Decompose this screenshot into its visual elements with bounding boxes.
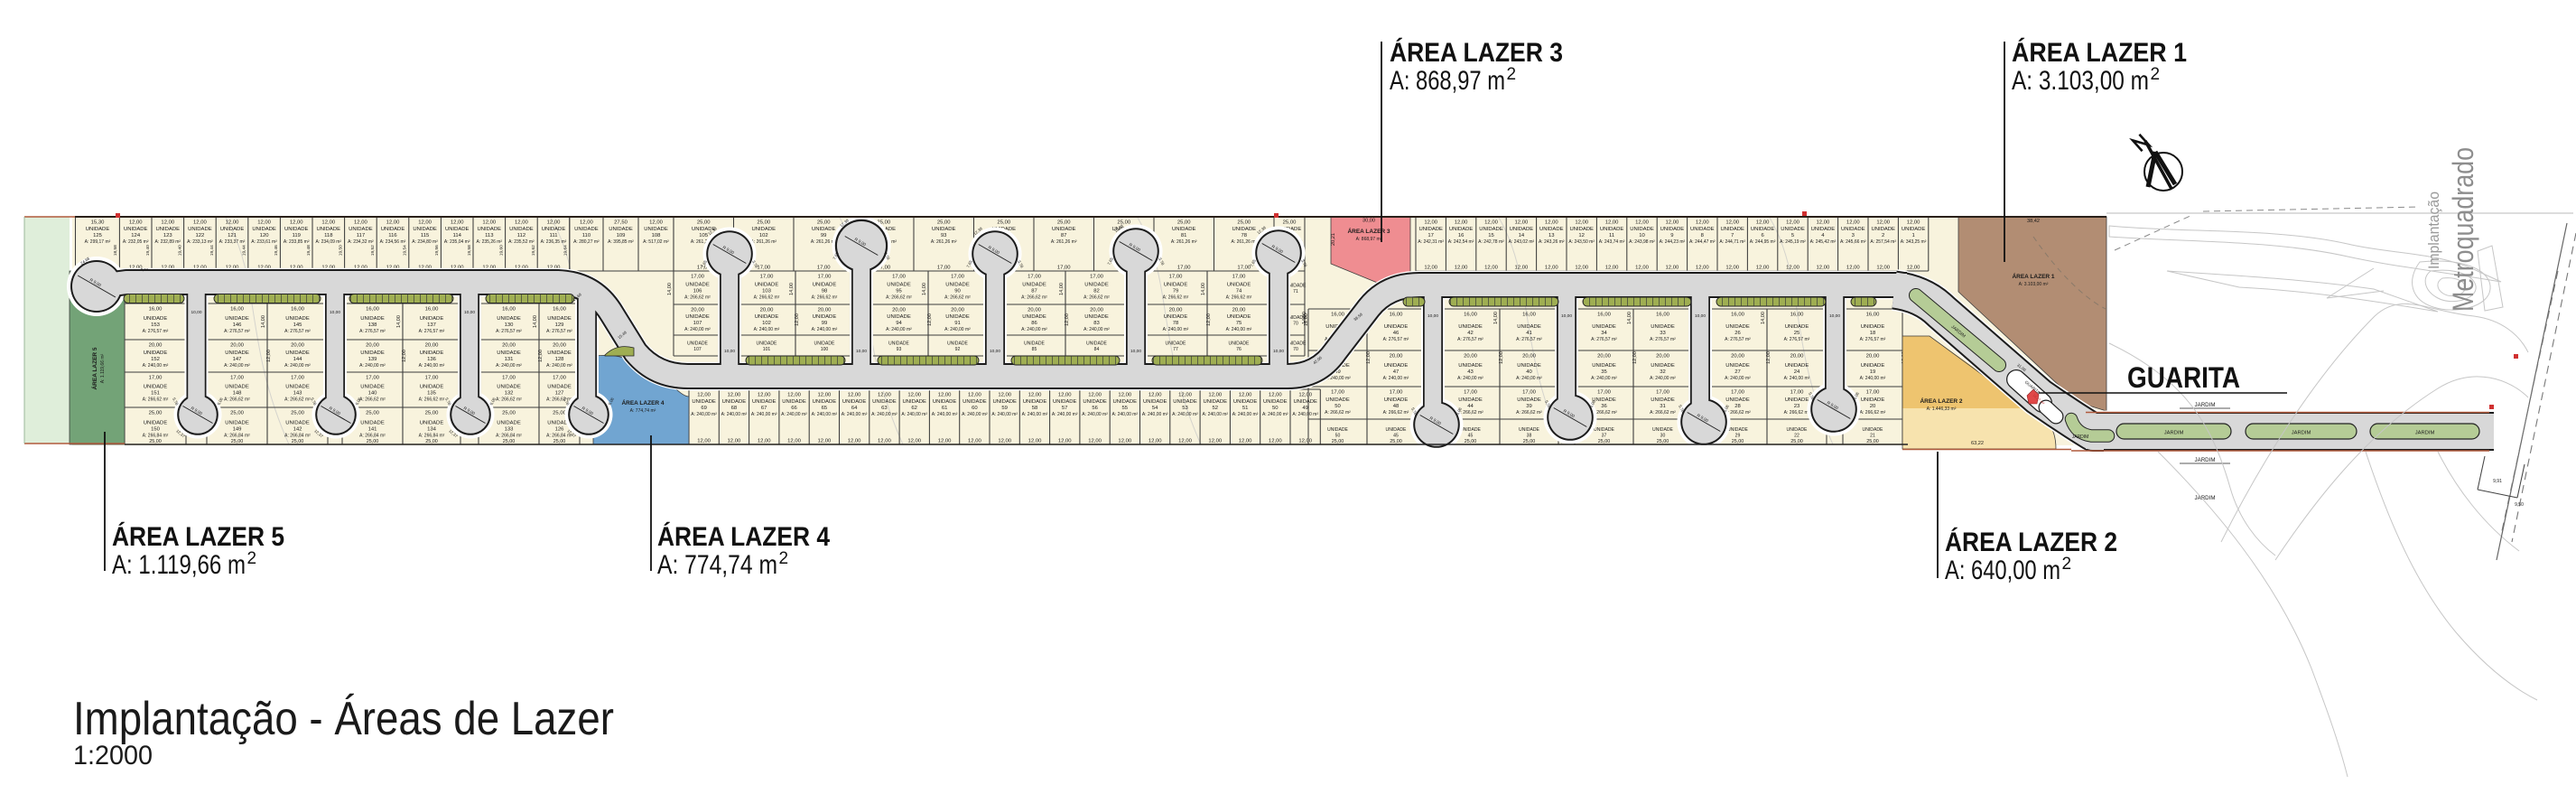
svg-text:UNIDADE: UNIDADE (1592, 324, 1616, 330)
svg-text:90: 90 (954, 289, 961, 294)
svg-text:A: 243,26 m²: A: 243,26 m² (1539, 239, 1565, 245)
svg-text:20,00: 20,00 (691, 308, 704, 313)
svg-text:UNIDADE: UNIDADE (542, 227, 566, 232)
svg-text:27,50: 27,50 (614, 220, 628, 226)
svg-text:12,00: 12,00 (1298, 439, 1312, 444)
svg-text:17,00: 17,00 (1028, 275, 1041, 280)
svg-text:37: 37 (1602, 434, 1607, 439)
svg-text:A: 240,00 m²: A: 240,00 m² (1232, 412, 1259, 417)
svg-text:20,00: 20,00 (818, 308, 832, 313)
svg-text:ÁREA LAZER 4: ÁREA LAZER 4 (621, 398, 664, 406)
svg-text:UNIDADE: UNIDADE (685, 283, 710, 288)
svg-text:16,00: 16,00 (553, 307, 566, 313)
svg-text:UNIDADE: UNIDADE (1084, 283, 1109, 288)
svg-text:A: 266,84 m²: A: 266,84 m² (359, 434, 386, 439)
svg-text:UNIDADE: UNIDADE (509, 227, 534, 232)
svg-text:12,00: 12,00 (1088, 393, 1102, 398)
svg-text:19,40: 19,40 (145, 245, 151, 256)
svg-text:17,00: 17,00 (1790, 390, 1804, 396)
svg-text:UNIDADE: UNIDADE (1630, 227, 1654, 232)
svg-text:111: 111 (550, 233, 558, 238)
svg-text:12,00: 12,00 (848, 393, 861, 398)
svg-text:UNIDADE: UNIDADE (360, 385, 385, 390)
svg-text:25,00: 25,00 (997, 220, 1010, 226)
svg-text:UNIDADE: UNIDADE (1083, 399, 1107, 405)
svg-text:UNIDADE: UNIDADE (1143, 399, 1167, 405)
svg-text:12,00: 12,00 (226, 220, 239, 226)
svg-text:19,52: 19,52 (370, 245, 376, 256)
svg-text:25,00: 25,00 (149, 411, 163, 416)
svg-text:10,00: 10,00 (1130, 349, 1141, 354)
svg-text:66: 66 (791, 406, 797, 411)
svg-text:UNIDADE: UNIDADE (609, 227, 633, 232)
svg-text:16,00: 16,00 (149, 307, 163, 313)
svg-text:16,00: 16,00 (1656, 313, 1669, 318)
svg-text:12,00: 12,00 (1088, 439, 1102, 444)
svg-text:A: 240,00 m²: A: 240,00 m² (1172, 412, 1198, 417)
svg-text:12,00: 12,00 (321, 220, 335, 226)
svg-text:25,00: 25,00 (757, 220, 770, 226)
svg-text:19,46: 19,46 (274, 245, 279, 256)
svg-text:62: 62 (911, 406, 917, 411)
svg-text:12,00: 12,00 (1786, 220, 1799, 226)
svg-text:2: 2 (2151, 65, 2161, 84)
svg-text:A: 240,00 m²: A: 240,00 m² (1457, 376, 1483, 381)
svg-text:34: 34 (1601, 331, 1607, 336)
svg-text:20,21: 20,21 (1331, 233, 1336, 246)
svg-text:20,00: 20,00 (149, 343, 163, 349)
svg-text:12,00: 12,00 (787, 439, 801, 444)
svg-text:A: 1.119,66 m: A: 1.119,66 m (112, 550, 246, 580)
svg-text:A: 240,00 m²: A: 240,00 m² (1292, 412, 1318, 417)
svg-text:UNIDADE: UNIDADE (1871, 227, 1895, 232)
svg-text:17,00: 17,00 (1731, 390, 1744, 396)
svg-text:A: 240,00 m²: A: 240,00 m² (1262, 412, 1288, 417)
svg-text:99: 99 (822, 321, 828, 326)
svg-text:7: 7 (1731, 233, 1734, 238)
svg-text:A: 276,57 m²: A: 276,57 m² (224, 329, 250, 334)
svg-text:12,00: 12,00 (1058, 393, 1072, 398)
svg-text:130: 130 (505, 322, 515, 328)
svg-text:120: 120 (260, 233, 270, 238)
svg-text:12,00: 12,00 (1118, 439, 1131, 444)
svg-text:A: 240,00 m²: A: 240,00 m² (962, 412, 988, 417)
svg-text:108: 108 (652, 233, 662, 238)
svg-text:103: 103 (762, 289, 772, 294)
svg-text:A: 266,84 m²: A: 266,84 m² (284, 434, 311, 439)
svg-text:UNIDADE: UNIDADE (755, 314, 779, 320)
svg-text:A: 266,62 m²: A: 266,62 m² (1325, 410, 1351, 416)
svg-text:A: 234,09 m²: A: 234,09 m² (315, 239, 341, 245)
svg-text:A: 240,00 m²: A: 240,00 m² (1163, 327, 1189, 332)
svg-text:25,00: 25,00 (231, 439, 244, 444)
svg-text:14,00: 14,00 (396, 315, 402, 328)
svg-text:UNIDADE: UNIDADE (420, 350, 444, 356)
svg-text:12,00: 12,00 (907, 439, 921, 444)
svg-text:28: 28 (1734, 404, 1741, 409)
svg-text:A: 266,62 m²: A: 266,62 m² (496, 397, 522, 403)
svg-text:16,00: 16,00 (366, 307, 379, 313)
svg-text:25,00: 25,00 (291, 411, 304, 416)
svg-text:14,00: 14,00 (922, 283, 927, 295)
svg-text:A: 240,00 m²: A: 240,00 m² (812, 327, 838, 332)
svg-text:142: 142 (293, 427, 302, 433)
svg-text:13: 13 (1548, 233, 1555, 238)
svg-text:A: 266,62 m²: A: 266,62 m² (1083, 295, 1110, 301)
svg-text:A: 245,19 m²: A: 245,19 m² (1780, 239, 1806, 245)
svg-text:24: 24 (1794, 369, 1800, 375)
svg-text:10,00: 10,00 (1561, 313, 1572, 319)
svg-text:12,00: 12,00 (1208, 439, 1222, 444)
svg-text:A: 1.119,66 m²: A: 1.119,66 m² (100, 353, 106, 383)
svg-text:12,00: 12,00 (482, 220, 496, 226)
svg-text:151: 151 (151, 391, 160, 397)
svg-text:93: 93 (941, 233, 947, 238)
svg-text:59: 59 (1001, 406, 1008, 411)
svg-text:25,00: 25,00 (366, 411, 379, 416)
svg-text:A: 240,00 m²: A: 240,00 m² (1725, 376, 1751, 381)
svg-text:A: 240,00 m²: A: 240,00 m² (1202, 412, 1228, 417)
svg-text:UNIDADE: UNIDADE (188, 227, 212, 232)
svg-text:12,00: 12,00 (1484, 266, 1498, 271)
svg-text:A: 245,42 m²: A: 245,42 m² (1810, 239, 1837, 245)
svg-text:78: 78 (1173, 321, 1179, 326)
svg-text:94: 94 (896, 321, 902, 326)
svg-text:A: 266,84 m²: A: 266,84 m² (143, 434, 169, 439)
svg-text:15: 15 (1488, 233, 1494, 238)
svg-text:17,00: 17,00 (425, 376, 439, 381)
svg-text:UNIDADE: UNIDADE (360, 421, 385, 426)
svg-text:2: 2 (247, 549, 257, 568)
svg-text:A: 517,02 m²: A: 517,02 m² (643, 239, 669, 245)
svg-text:UNIDADE: UNIDADE (1517, 397, 1541, 403)
svg-text:A: 234,56 m²: A: 234,56 m² (380, 239, 406, 245)
svg-text:ÁREA LAZER 1: ÁREA LAZER 1 (2012, 37, 2187, 68)
svg-text:UNIDADE: UNIDADE (381, 227, 405, 232)
svg-text:12,00: 12,00 (907, 393, 921, 398)
svg-text:JARDIM: JARDIM (2194, 495, 2215, 501)
svg-text:25,00: 25,00 (1866, 439, 1879, 444)
svg-text:UNIDADE: UNIDADE (887, 283, 911, 288)
svg-text:10,00: 10,00 (724, 349, 735, 354)
svg-text:UNIDADE: UNIDADE (1022, 283, 1046, 288)
svg-text:16,00: 16,00 (1866, 313, 1880, 318)
svg-text:45: 45 (1393, 434, 1399, 439)
svg-text:A: 266,84 m²: A: 266,84 m² (224, 434, 250, 439)
svg-text:UNIDADE: UNIDADE (420, 385, 444, 390)
svg-text:12,00: 12,00 (649, 220, 663, 226)
svg-text:20,00: 20,00 (1232, 308, 1246, 313)
svg-text:A: 232,89 m²: A: 232,89 m² (154, 239, 181, 245)
svg-text:UNIDADE: UNIDADE (1458, 324, 1483, 330)
svg-text:A: 240,00 m²: A: 240,00 m² (1083, 327, 1110, 332)
svg-text:17,00: 17,00 (1390, 390, 1403, 396)
svg-text:A: 235,26 m²: A: 235,26 m² (476, 239, 502, 245)
svg-text:A: 395,85 m²: A: 395,85 m² (608, 239, 634, 245)
svg-text:UNIDADE: UNIDADE (814, 341, 836, 347)
svg-text:82: 82 (1093, 289, 1100, 294)
svg-text:17,00: 17,00 (1464, 390, 1477, 396)
svg-text:A: 266,62 m²: A: 266,62 m² (1226, 295, 1252, 301)
svg-text:UNIDADE: UNIDADE (1052, 227, 1076, 232)
svg-text:25,00: 25,00 (1390, 439, 1402, 444)
svg-text:UNIDADE: UNIDADE (225, 385, 249, 390)
svg-text:A: 240,00 m²: A: 240,00 m² (871, 412, 897, 417)
svg-text:25,00: 25,00 (553, 411, 566, 416)
svg-text:54: 54 (1152, 406, 1158, 411)
svg-text:10,00: 10,00 (990, 349, 1000, 354)
svg-text:40: 40 (1526, 369, 1532, 375)
svg-text:25: 25 (1794, 331, 1800, 336)
svg-text:19,44: 19,44 (209, 245, 215, 256)
svg-text:12,00: 12,00 (1545, 220, 1558, 226)
svg-text:UNIDADE: UNIDADE (1727, 427, 1749, 433)
svg-text:20,00: 20,00 (1522, 354, 1536, 360)
svg-text:14,00: 14,00 (261, 315, 266, 328)
svg-text:A: 240,00 m²: A: 240,00 m² (284, 363, 311, 369)
svg-text:21: 21 (1870, 434, 1875, 439)
svg-text:20,00: 20,00 (1790, 354, 1804, 360)
svg-text:UNIDADE: UNIDADE (945, 283, 970, 288)
svg-text:JARDIM: JARDIM (2164, 431, 2184, 436)
svg-text:UNIDADE: UNIDADE (813, 314, 837, 320)
svg-text:UNIDADE: UNIDADE (842, 399, 867, 405)
svg-text:12,00: 12,00 (161, 220, 174, 226)
svg-text:19,40: 19,40 (177, 245, 182, 256)
svg-text:92: 92 (955, 347, 961, 352)
svg-text:A: 280,27 m²: A: 280,27 m² (573, 239, 600, 245)
svg-text:2: 2 (1882, 233, 1884, 238)
svg-text:20,00: 20,00 (951, 308, 964, 313)
svg-text:17,00: 17,00 (691, 275, 704, 280)
svg-text:71: 71 (1293, 289, 1298, 294)
svg-text:A: 240,00 m²: A: 240,00 m² (991, 412, 1018, 417)
svg-text:17,00: 17,00 (817, 266, 831, 271)
svg-text:A: 244,47 m²: A: 244,47 m² (1689, 239, 1716, 245)
svg-text:2: 2 (2062, 555, 2072, 574)
svg-text:75: 75 (1236, 321, 1242, 326)
svg-text:A: 266,62 m²: A: 266,62 m² (143, 397, 169, 403)
svg-text:UNIDADE: UNIDADE (284, 227, 309, 232)
svg-text:86: 86 (1031, 321, 1037, 326)
svg-text:112: 112 (517, 233, 525, 238)
svg-text:9,91: 9,91 (2493, 479, 2502, 484)
svg-text:19,64: 19,64 (563, 245, 569, 256)
svg-text:2: 2 (779, 549, 789, 568)
svg-text:A: 276,57 m²: A: 276,57 m² (1725, 337, 1751, 342)
svg-text:152: 152 (151, 357, 160, 362)
svg-text:A: 266,62 m²: A: 266,62 m² (359, 397, 386, 403)
svg-text:UNIDADE: UNIDADE (420, 421, 444, 426)
svg-text:12,00: 12,00 (354, 220, 367, 226)
svg-text:25,00: 25,00 (1523, 439, 1536, 444)
svg-text:UNIDADE: UNIDADE (1386, 427, 1408, 433)
svg-text:A: 276,57 m²: A: 276,57 m² (1860, 337, 1886, 342)
svg-text:43: 43 (1467, 369, 1474, 375)
svg-text:11: 11 (1609, 233, 1614, 238)
svg-text:ÁREA LAZER 5: ÁREA LAZER 5 (112, 521, 284, 552)
svg-text:UNIDADE: UNIDADE (1327, 427, 1349, 433)
svg-text:UNIDADE: UNIDADE (225, 421, 249, 426)
svg-text:A: 232,05 m²: A: 232,05 m² (123, 239, 149, 245)
svg-text:50: 50 (1272, 406, 1279, 411)
svg-text:UNIDADE: UNIDADE (1233, 399, 1258, 405)
svg-text:53: 53 (1182, 406, 1188, 411)
svg-text:14,00: 14,00 (1059, 283, 1065, 295)
svg-text:143: 143 (293, 391, 303, 397)
svg-text:12,00: 12,00 (1756, 266, 1770, 271)
svg-text:A: 261,26 m²: A: 261,26 m² (750, 239, 777, 245)
svg-text:12,00: 12,00 (1605, 266, 1619, 271)
svg-text:17: 17 (1427, 233, 1434, 238)
svg-text:A: 261,26 m²: A: 261,26 m² (1051, 239, 1077, 245)
svg-text:12,00: 12,00 (257, 220, 271, 226)
svg-text:60: 60 (972, 406, 978, 411)
svg-text:ÁREA LAZER 3: ÁREA LAZER 3 (1347, 227, 1390, 235)
svg-text:20,00: 20,00 (1597, 354, 1611, 360)
svg-text:25,00: 25,00 (230, 411, 244, 416)
svg-text:UNIDADE: UNIDADE (1720, 227, 1744, 232)
svg-text:135: 135 (427, 391, 437, 397)
svg-text:12,00: 12,00 (1455, 266, 1468, 271)
svg-text:A: 240,00 m²: A: 240,00 m² (721, 412, 748, 417)
svg-text:20,00: 20,00 (1866, 354, 1880, 360)
svg-text:ÁREA LAZER 4: ÁREA LAZER 4 (657, 521, 830, 552)
svg-text:A: 234,80 m²: A: 234,80 m² (412, 239, 438, 245)
svg-text:25,00: 25,00 (937, 220, 951, 226)
svg-text:A: 640,00 m: A: 640,00 m (1945, 556, 2060, 585)
svg-text:1: 1 (1911, 233, 1914, 238)
svg-text:UNIDADE: UNIDADE (1172, 227, 1196, 232)
svg-text:A: 240,00 m²: A: 240,00 m² (754, 327, 780, 332)
svg-text:UNIDADE: UNIDADE (1166, 341, 1187, 347)
svg-text:25,00: 25,00 (553, 439, 566, 444)
svg-text:17,00: 17,00 (1232, 275, 1246, 280)
svg-text:77: 77 (1173, 347, 1178, 352)
svg-text:12,00: 12,00 (1424, 266, 1437, 271)
svg-text:A: 266,84 m²: A: 266,84 m² (496, 434, 522, 439)
svg-text:17,00: 17,00 (230, 376, 244, 381)
svg-text:14,00: 14,00 (667, 283, 673, 295)
svg-text:149: 149 (233, 427, 242, 433)
svg-text:26: 26 (1734, 331, 1741, 336)
svg-text:UNIDADE: UNIDADE (1781, 227, 1805, 232)
svg-text:A: 240,00 m²: A: 240,00 m² (1226, 327, 1252, 332)
svg-text:12,00: 12,00 (418, 220, 432, 226)
svg-text:25,00: 25,00 (503, 439, 516, 444)
svg-text:A: 240,00 m²: A: 240,00 m² (1022, 412, 1048, 417)
svg-text:UNIDADE: UNIDADE (722, 399, 747, 405)
svg-text:36: 36 (1601, 404, 1607, 409)
svg-text:25,00: 25,00 (1465, 439, 1477, 444)
svg-text:9: 9 (1670, 233, 1673, 238)
svg-text:UNIDADE: UNIDADE (1086, 341, 1108, 347)
svg-text:UNIDADE: UNIDADE (992, 399, 1017, 405)
svg-text:20,00: 20,00 (553, 343, 566, 349)
svg-text:12,00: 12,00 (515, 220, 528, 226)
svg-text:UNIDADE: UNIDADE (1569, 227, 1594, 232)
svg-text:A: 266,62 m²: A: 266,62 m² (224, 397, 250, 403)
svg-text:UNIDADE: UNIDADE (1384, 324, 1409, 330)
svg-text:12,00: 12,00 (1817, 220, 1830, 226)
svg-text:12,00: 12,00 (1484, 220, 1498, 226)
svg-text:25,00: 25,00 (149, 439, 162, 444)
svg-text:A: 276,57 m²: A: 276,57 m² (1650, 337, 1676, 342)
svg-text:32: 32 (1660, 369, 1666, 375)
svg-text:79: 79 (1173, 289, 1179, 294)
svg-text:15,30: 15,30 (91, 220, 105, 226)
svg-text:12,00: 12,00 (1846, 266, 1860, 271)
svg-text:12,00: 12,00 (1118, 393, 1131, 398)
svg-text:20,00: 20,00 (1731, 354, 1744, 360)
svg-text:A: 774,74 m: A: 774,74 m (657, 550, 777, 580)
svg-text:55: 55 (1122, 406, 1129, 411)
svg-text:UNIDADE: UNIDADE (285, 350, 310, 356)
svg-text:UNIDADE: UNIDADE (813, 283, 837, 288)
svg-text:UNIDADE: UNIDADE (1460, 427, 1482, 433)
svg-text:UNIDADE: UNIDADE (1510, 227, 1534, 232)
svg-text:128: 128 (555, 357, 565, 362)
svg-text:17,00: 17,00 (1656, 390, 1669, 396)
svg-text:20: 20 (1870, 404, 1876, 409)
svg-text:17,00: 17,00 (951, 275, 964, 280)
svg-text:134: 134 (427, 427, 437, 433)
svg-text:14,00: 14,00 (1761, 312, 1766, 324)
svg-text:12,00: 12,00 (728, 439, 741, 444)
svg-text:12,00: 12,00 (1028, 393, 1042, 398)
svg-text:39: 39 (1526, 404, 1532, 409)
svg-text:UNIDADE: UNIDADE (285, 421, 310, 426)
svg-text:10,00: 10,00 (1829, 313, 1840, 319)
svg-text:76: 76 (1236, 347, 1242, 352)
svg-text:12,00: 12,00 (1208, 393, 1222, 398)
svg-text:A: 240,00 m²: A: 240,00 m² (1650, 376, 1676, 381)
svg-text:10,00: 10,00 (856, 349, 867, 354)
svg-text:UNIDADE: UNIDADE (156, 227, 181, 232)
svg-text:29: 29 (1735, 434, 1741, 439)
svg-text:UNIDADE: UNIDADE (932, 227, 956, 232)
svg-text:127: 127 (555, 391, 564, 397)
svg-text:12,00: 12,00 (1635, 266, 1649, 271)
svg-text:UNIDADE: UNIDADE (888, 341, 910, 347)
svg-text:UNIDADE: UNIDADE (1053, 399, 1077, 405)
svg-text:12,00: 12,00 (1239, 439, 1252, 444)
svg-text:25,00: 25,00 (697, 220, 711, 226)
svg-text:129: 129 (555, 322, 564, 328)
svg-text:25,00: 25,00 (1057, 220, 1071, 226)
svg-text:61: 61 (942, 406, 948, 411)
svg-text:A: 266,62 m²: A: 266,62 m² (812, 295, 838, 301)
svg-text:UNIDADE: UNIDADE (1458, 397, 1483, 403)
svg-text:12: 12 (1578, 233, 1585, 238)
svg-text:19,60: 19,60 (498, 245, 504, 256)
svg-text:A: 3.103,00 m: A: 3.103,00 m (2012, 66, 2149, 96)
svg-text:A: 240,00 m²: A: 240,00 m² (1516, 376, 1542, 381)
svg-text:UNIDADE: UNIDADE (445, 227, 470, 232)
svg-text:56: 56 (1092, 406, 1098, 411)
svg-text:A: 240,00 m²: A: 240,00 m² (812, 412, 838, 417)
svg-text:UNIDADE: UNIDADE (782, 399, 806, 405)
svg-text:A: 276,57 m²: A: 276,57 m² (1383, 337, 1409, 342)
svg-text:UNIDADE: UNIDADE (1164, 314, 1188, 320)
svg-text:12,00: 12,00 (547, 220, 561, 226)
svg-text:17,00: 17,00 (1177, 266, 1191, 271)
svg-text:A: 240,00 m²: A: 240,00 m² (419, 363, 445, 369)
svg-text:12,00: 12,00 (1515, 220, 1529, 226)
svg-text:12,00: 12,00 (386, 220, 400, 226)
svg-text:106: 106 (693, 289, 703, 294)
svg-text:12,00: 12,00 (580, 220, 593, 226)
